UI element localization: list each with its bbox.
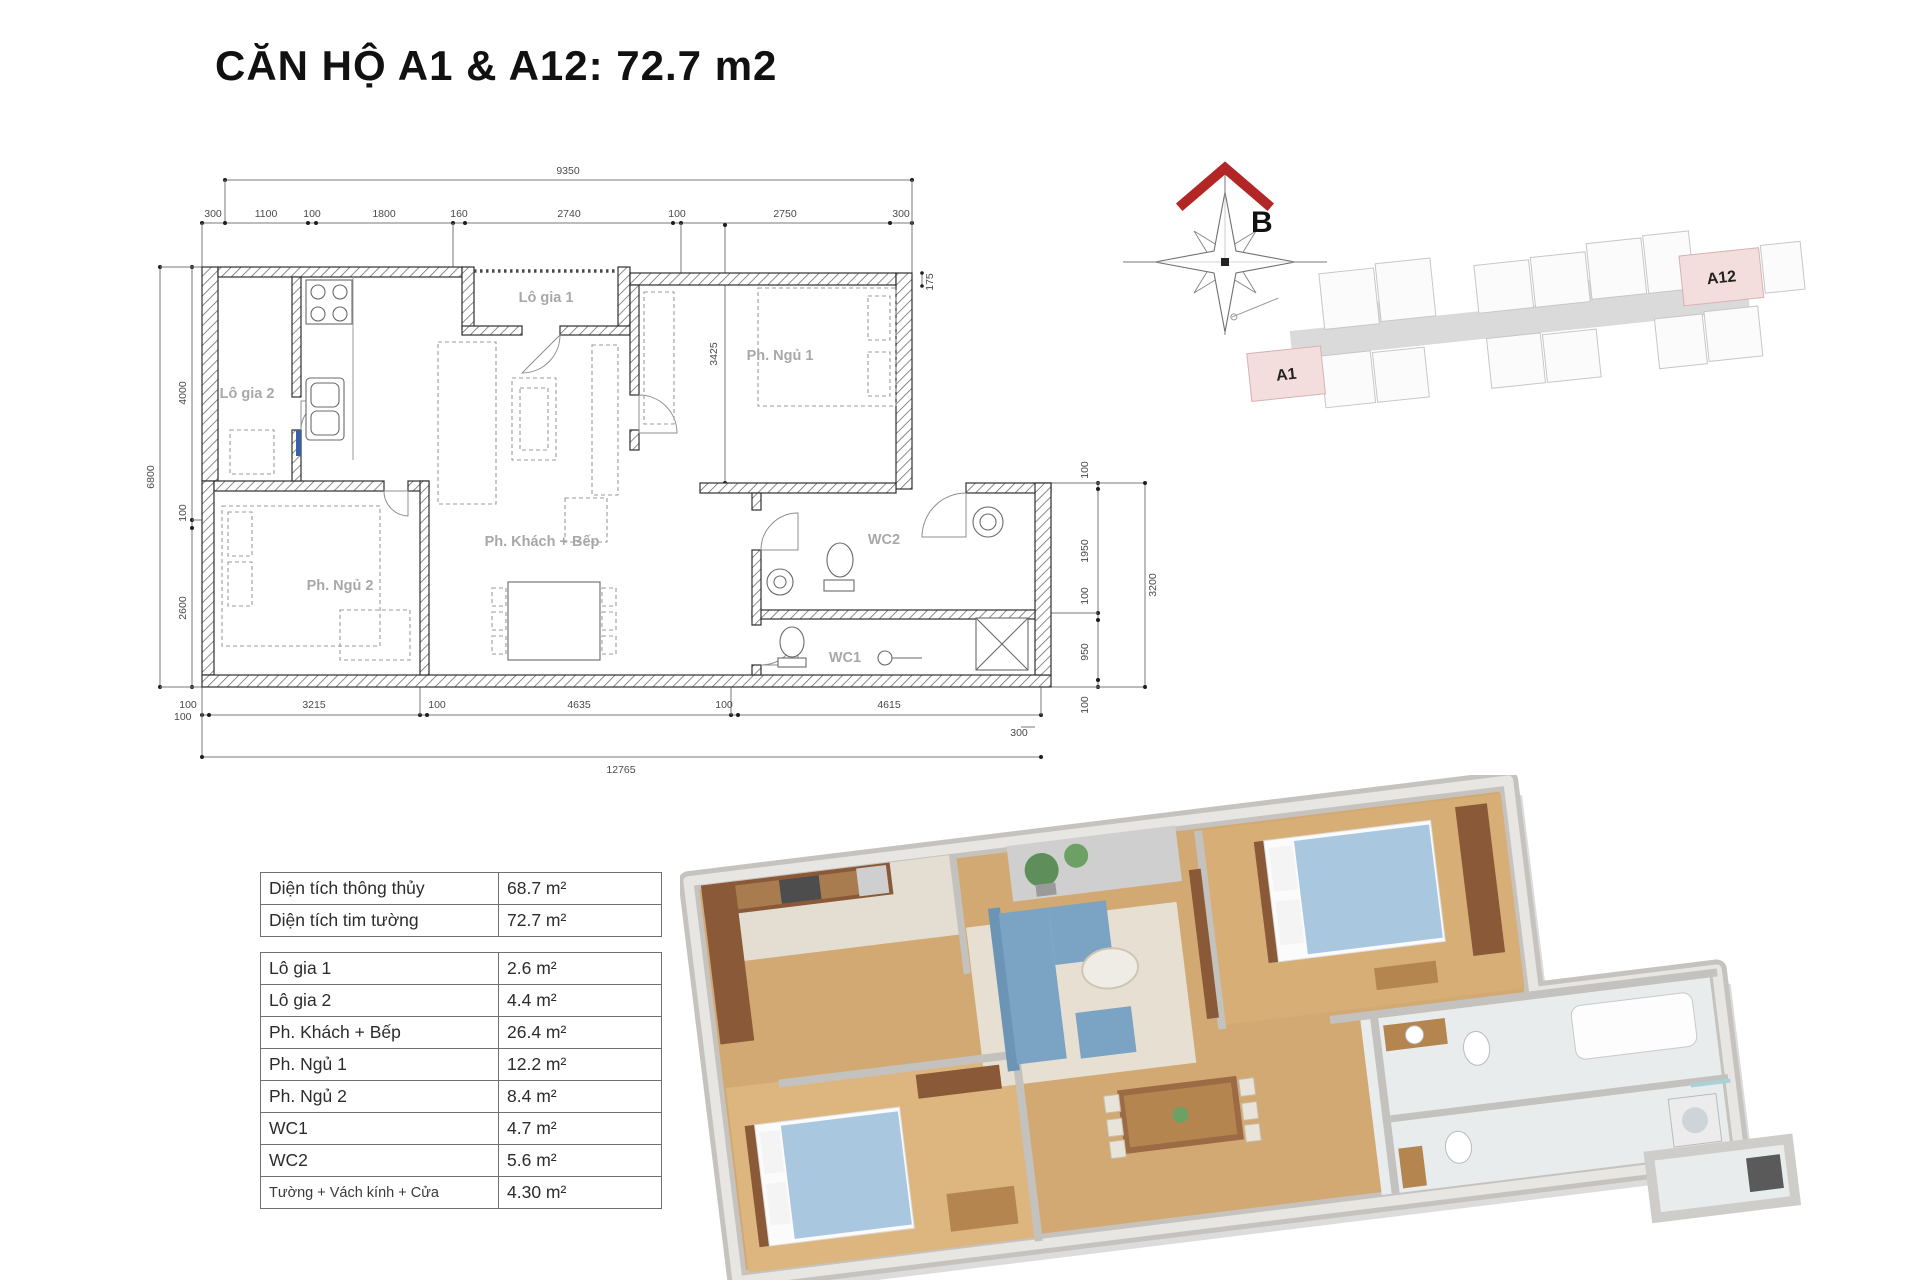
dining-table — [508, 582, 600, 660]
table-row: Diện tích tim tường 72.7 m² — [261, 905, 662, 937]
floor-plan-svg: 9350 300 1100 100 1800 160 2740 100 2750… — [140, 130, 1190, 790]
dim-top-1: 1100 — [255, 208, 278, 220]
room-label-logia2: Lô gia 2 — [220, 386, 275, 402]
table-row: Lô gia 2 4.4 m² — [261, 985, 662, 1017]
row-value: 4.30 m² — [499, 1177, 662, 1209]
coffee-table — [512, 378, 556, 460]
dim-left-0: 4000 — [177, 381, 189, 405]
row-label: Lô gia 2 — [261, 985, 499, 1017]
floor-plan-3d-render — [680, 775, 1820, 1280]
bed2 — [222, 506, 380, 646]
render-stove — [779, 875, 822, 904]
row-label: WC2 — [261, 1145, 499, 1177]
table-row: Ph. Khách + Bếp 26.4 m² — [261, 1017, 662, 1049]
dim-bottom-4: 100 — [715, 699, 733, 711]
dim-bottom-1: 3215 — [302, 699, 326, 711]
dim-left-bottom: 100 — [174, 711, 192, 723]
table-row: WC2 5.6 m² — [261, 1145, 662, 1177]
building-key-plan: A1 A12 — [1230, 215, 1810, 435]
table-row: Tường + Vách kính + Cửa 4.30 m² — [261, 1177, 662, 1209]
dim-bottom-3: 4635 — [567, 699, 591, 711]
dim-bottom-total: 12765 — [606, 764, 635, 776]
dim-right-total: 3200 — [1147, 573, 1159, 597]
keyplan-label-a1: A1 — [1275, 366, 1297, 385]
key-plan-svg: A1 A12 — [1230, 215, 1810, 430]
row-label: Tường + Vách kính + Cửa — [261, 1177, 499, 1209]
dim-top-5: 2740 — [557, 208, 581, 220]
dim-top-total: 9350 — [556, 165, 580, 177]
walls — [202, 267, 1051, 687]
page: CĂN HỘ A1 & A12: 72.7 m2 9350 300 — [0, 0, 1920, 1280]
row-value: 5.6 m² — [499, 1145, 662, 1177]
entry-door — [922, 493, 966, 537]
dim-top-0: 300 — [204, 208, 222, 220]
row-value: 72.7 m² — [499, 905, 662, 937]
bed1 — [758, 288, 896, 406]
wardrobe1 — [644, 292, 674, 424]
row-value: 4.4 m² — [499, 985, 662, 1017]
dim-top-6: 100 — [668, 208, 686, 220]
dim-bottom: 100 3215 100 4635 100 4615 12765 300 — [179, 687, 1043, 776]
render-armchair — [1075, 1006, 1136, 1058]
row-value: 26.4 m² — [499, 1017, 662, 1049]
dim-left-total: 6800 — [145, 465, 157, 489]
balcony2-unit — [230, 430, 274, 474]
row-value: 68.7 m² — [499, 873, 662, 905]
row-value: 2.6 m² — [499, 953, 662, 985]
dim-right-3: 950 — [1079, 643, 1091, 661]
dim-top-3: 1800 — [372, 208, 396, 220]
row-label: Diện tích thông thủy — [261, 873, 499, 905]
table-row: Diện tích thông thủy 68.7 m² — [261, 873, 662, 905]
table-row: Ph. Ngủ 1 12.2 m² — [261, 1049, 662, 1081]
room-label-wc2: WC2 — [868, 532, 900, 548]
dim-left-1: 100 — [177, 504, 189, 522]
dim-top-right: 175 — [924, 273, 936, 291]
sofa — [438, 342, 496, 504]
area-table-summary: Diện tích thông thủy 68.7 m² Diện tích t… — [260, 872, 662, 937]
wc2-toilet-icon — [827, 543, 853, 577]
dim-right-bottom: 300 — [1010, 727, 1028, 739]
dim-bottom-2: 100 — [428, 699, 446, 711]
bedroom1-door — [639, 395, 677, 433]
row-label: WC1 — [261, 1113, 499, 1145]
dim-bottom-0: 100 — [179, 699, 197, 711]
area-table: Diện tích thông thủy 68.7 m² Diện tích t… — [260, 872, 662, 1209]
tv-cabinet — [592, 345, 618, 495]
dim-right-4: 100 — [1079, 696, 1091, 714]
room-label-ngu1: Ph. Ngủ 1 — [747, 348, 814, 364]
row-value: 12.2 m² — [499, 1049, 662, 1081]
wc1-toilet-icon — [780, 627, 804, 657]
dim-top-2: 100 — [303, 208, 321, 220]
row-value: 4.7 m² — [499, 1113, 662, 1145]
dim-left-2: 2600 — [177, 596, 189, 620]
room-label-logia1: Lô gia 1 — [519, 290, 574, 306]
dim-right-0: 100 — [1079, 461, 1091, 479]
dim-right-2: 100 — [1079, 587, 1091, 605]
floor-plan-2d: 9350 300 1100 100 1800 160 2740 100 2750… — [140, 130, 1190, 795]
dim-top-4: 160 — [450, 208, 468, 220]
dim-ngu1-height: 3425 — [708, 342, 720, 366]
row-label: Lô gia 1 — [261, 953, 499, 985]
row-label: Ph. Khách + Bếp — [261, 1017, 499, 1049]
desk2 — [340, 610, 410, 660]
row-label: Ph. Ngủ 2 — [261, 1081, 499, 1113]
dim-right-1: 1950 — [1079, 539, 1091, 563]
row-value: 8.4 m² — [499, 1081, 662, 1113]
room-label-ngu2: Ph. Ngủ 2 — [307, 578, 374, 594]
dim-top-7: 2750 — [773, 208, 797, 220]
table-row: Lô gia 1 2.6 m² — [261, 953, 662, 985]
wc1-sink-icon — [878, 651, 892, 665]
living-balcony-door — [522, 335, 560, 373]
keyplan-label-a12: A12 — [1706, 268, 1737, 288]
dim-right: 100 1950 100 950 100 3200 3425 — [708, 223, 1159, 714]
bedroom2-door — [384, 491, 408, 516]
area-table-details: Lô gia 1 2.6 m² Lô gia 2 4.4 m² Ph. Khác… — [260, 952, 662, 1209]
row-label: Diện tích tim tường — [261, 905, 499, 937]
table-row: WC1 4.7 m² — [261, 1113, 662, 1145]
wc2-door — [761, 513, 798, 550]
room-label-khach: Ph. Khách + Bếp — [485, 534, 600, 550]
dim-bottom-5: 4615 — [877, 699, 901, 711]
page-title: CĂN HỘ A1 & A12: 72.7 m2 — [215, 42, 777, 90]
dim-top-8: 300 — [892, 208, 910, 220]
room-label-wc1: WC1 — [829, 650, 861, 666]
row-label: Ph. Ngủ 1 — [261, 1049, 499, 1081]
kitchen-wall-accent — [296, 430, 301, 456]
table-row: Ph. Ngủ 2 8.4 m² — [261, 1081, 662, 1113]
render-fridge — [856, 865, 889, 896]
render-svg — [680, 775, 1820, 1280]
